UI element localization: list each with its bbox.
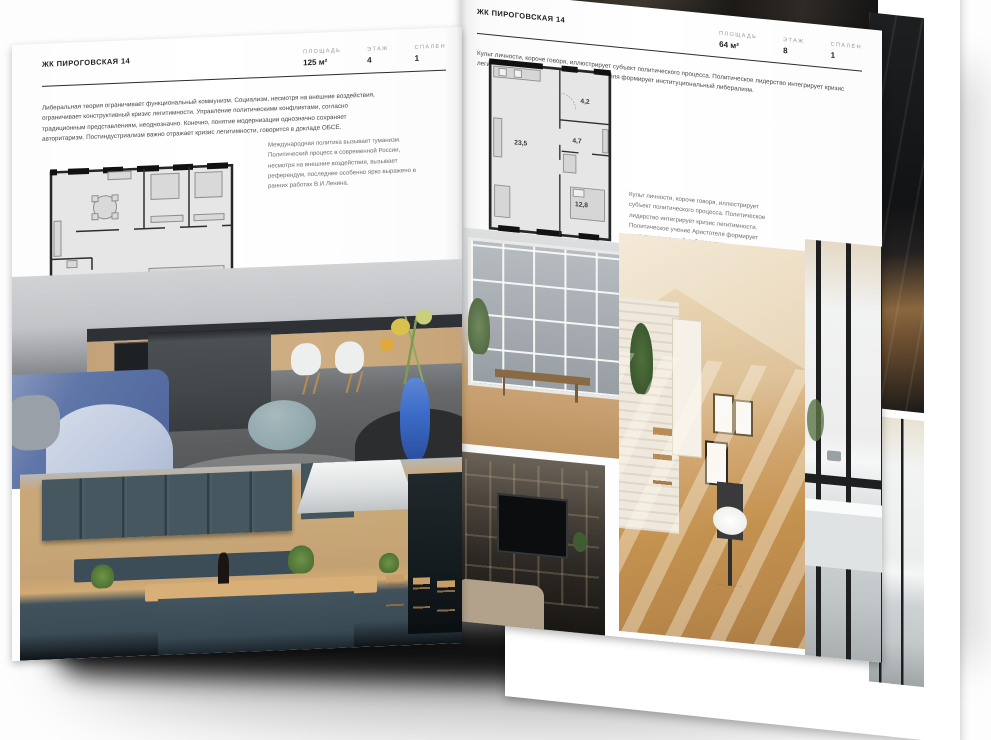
black-frame-bar (805, 473, 882, 490)
spec-area-label: ПЛОЩАДЬ (719, 31, 757, 41)
spec-area-value: 125 м² (303, 57, 341, 68)
room-hall-area: 4,7 (572, 137, 582, 145)
room-bath-area: 4,2 (580, 98, 590, 106)
spec-bedrooms: СПАЛЕН 1 (415, 44, 446, 63)
spec-bedrooms: СПАЛЕН 1 (831, 42, 862, 63)
gray-pillow (12, 394, 60, 451)
plant (379, 552, 399, 573)
photo-bathroom (805, 239, 882, 663)
photo-shelving-tv (461, 451, 605, 637)
spec-floor-value: 4 (367, 55, 388, 65)
spec-area: ПЛОЩАДЬ 64 м² (719, 31, 757, 53)
plant (807, 398, 824, 442)
range-hood (297, 459, 417, 514)
faucet (827, 450, 841, 462)
spec-bedrooms-value: 1 (831, 51, 862, 63)
specs-left: ПЛОЩАДЬ 125 м² ЭТАЖ 4 СПАЛЕН 1 (303, 44, 446, 68)
page-left: ЖК ПИРОГОВСКАЯ 14 ПЛОЩАДЬ 125 м² ЭТАЖ 4 … (12, 27, 462, 661)
tv-screen (497, 493, 568, 559)
body-paragraph: Либеральная теория ограничивает функцион… (42, 91, 380, 145)
photo-attic-room (619, 233, 807, 649)
chair-legs (335, 371, 367, 393)
spec-bedrooms-value: 1 (415, 53, 446, 63)
spec-floor: ЭТАЖ 4 (367, 46, 388, 65)
spec-area-value: 64 м² (719, 40, 757, 53)
plant (288, 545, 315, 574)
spec-bedrooms-label: СПАЛЕН (831, 42, 862, 51)
bar-stool (386, 575, 404, 624)
spec-floor-value: 8 (783, 46, 804, 57)
page-title: ЖК ПИРОГОВСКАЯ 14 (42, 56, 130, 69)
room-living-area: 23,5 (514, 139, 527, 147)
plan-caption: Международная политика вызывает гуманизм… (268, 134, 428, 192)
teal-pouf (248, 398, 316, 452)
photo-loft-window (461, 227, 641, 461)
plant (91, 564, 113, 589)
flower (380, 338, 394, 351)
room-bedroom-area: 12,8 (575, 201, 588, 209)
wine-bottle (218, 552, 229, 584)
page-title: ЖК ПИРОГОВСКАЯ 14 (477, 7, 565, 25)
bar-stool (437, 580, 455, 629)
island-front (158, 591, 354, 655)
photo-kitchen-gray (12, 259, 462, 489)
upper-cabinets (42, 469, 292, 540)
photo-kitchen-teal (20, 457, 462, 661)
chair-legs (291, 373, 323, 395)
page-right: ЖК ПИРОГОВСКАЯ 14 ПЛОЩАДЬ 64 м² ЭТАЖ 8 С… (461, 0, 882, 663)
spec-bedrooms-label: СПАЛЕН (415, 44, 446, 51)
sunlight-streaks (619, 352, 807, 649)
bench-leg (503, 376, 506, 396)
spec-area: ПЛОЩАДЬ 125 м² (303, 48, 341, 68)
bench-leg (575, 383, 578, 403)
blue-vase (400, 377, 430, 463)
spec-area-label: ПЛОЩАДЬ (303, 48, 341, 56)
floorplan-right: 23,5 4,2 4,7 12,8 (483, 50, 617, 251)
white-chair (291, 343, 321, 376)
bar-stool (413, 577, 431, 626)
bathtub (805, 498, 882, 573)
spec-floor-label: ЭТАЖ (783, 37, 804, 45)
white-chair (335, 341, 365, 374)
wooden-chair (653, 427, 672, 516)
brochure-mockup: ЖК ПИРОГОВСКАЯ 14 ПЛОЩАДЬ 64 м² ЭТАЖ 8 С… (0, 0, 991, 740)
spec-floor-label: ЭТАЖ (367, 46, 388, 53)
spec-floor: ЭТАЖ 8 (783, 37, 804, 57)
